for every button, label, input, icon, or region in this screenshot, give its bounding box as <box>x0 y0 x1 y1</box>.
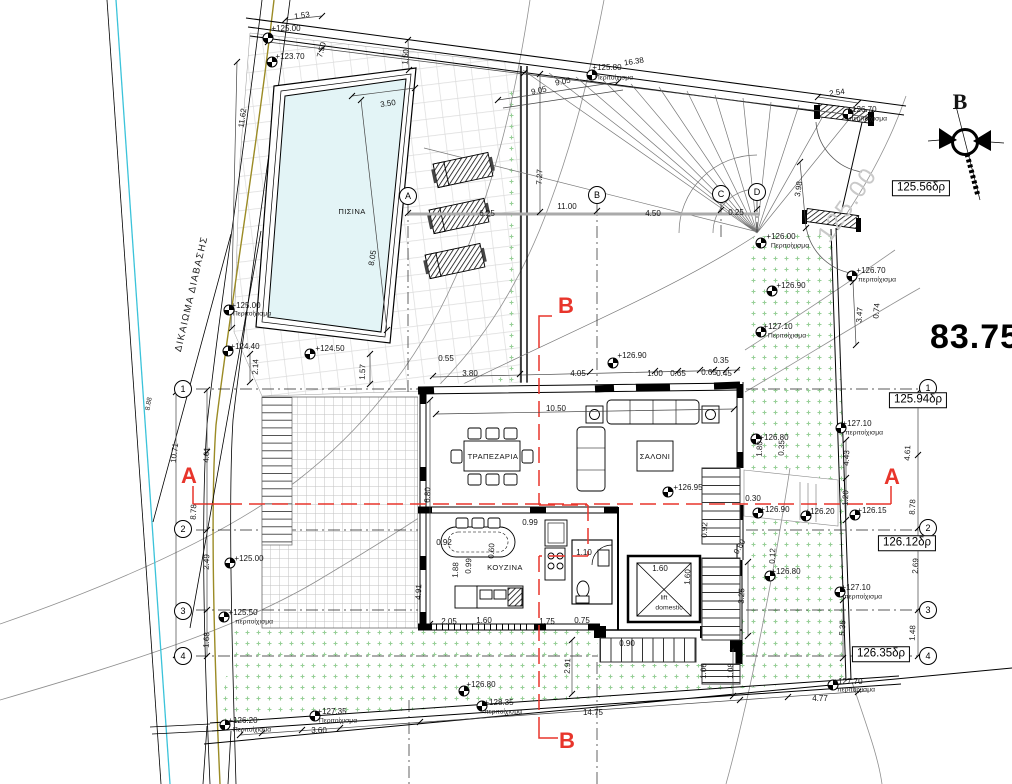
wall-note-3: περιτοίχισμα <box>849 117 887 124</box>
benchmark-icon <box>756 238 767 249</box>
elev-126-20-bl: +126.20 <box>228 717 257 725</box>
dim-1-80: 1.80 <box>756 441 765 457</box>
dim-4-61-right: 4.61 <box>904 445 913 461</box>
elev-125-80: +125.80 <box>592 64 621 72</box>
dim-6-25: 6.25 <box>479 210 495 218</box>
section-b-bottom: B <box>559 730 575 752</box>
wall-note-10: περιτοίχισμα <box>484 710 522 717</box>
grid-bubble-d: D <box>748 183 766 201</box>
box-126-12: 126.12δρ <box>878 535 936 551</box>
dim-1-08: 1.08 <box>727 663 736 679</box>
dim-8-78-left: 8.78 <box>190 504 199 520</box>
dim-1-48: 1.48 <box>909 625 918 641</box>
dim-1-06: 1.06 <box>700 663 709 679</box>
dim-1-10: 1.10 <box>576 549 592 557</box>
dim-0-90: 0.90 <box>619 640 635 648</box>
wall-note-6: Περιτοίχισμα <box>768 334 806 341</box>
terrace-stair <box>262 397 292 545</box>
wall-note-11: Περιτοίχισμα <box>233 728 271 735</box>
dim-1-75: 1.75 <box>539 618 555 626</box>
dim-6-80: 6.80 <box>424 487 433 503</box>
dim-4-61-left: 4.61 <box>203 447 212 463</box>
box-125-56: 125.56δρ <box>892 180 950 196</box>
dim-0-55: 0.55 <box>438 355 454 363</box>
dim-5-35: 5.35 <box>839 620 848 636</box>
dim-3-80: 3.80 <box>462 370 478 378</box>
box-125-94: 125.94δρ <box>889 392 947 408</box>
dim-0-35-a: 0.35 <box>713 357 729 365</box>
dim-1-00: 1.00 <box>647 370 663 378</box>
elev-127-35: +127.35 <box>317 708 346 716</box>
area-total: 83.75 <box>930 320 1012 354</box>
dim-3-60: 3.60 <box>311 727 327 735</box>
dim-8-78-right: 8.78 <box>909 499 918 515</box>
dim-0-65-a: 0.65 <box>670 370 686 378</box>
elev-126-80-lower: +126.80 <box>771 568 800 576</box>
grid-bubble-4: 4 <box>919 647 937 665</box>
wall-note-1: Περιτοίχισμα <box>233 312 271 319</box>
north-label: B <box>953 91 968 113</box>
dim-3-47: 3.47 <box>855 307 864 323</box>
stair-bottom-flight <box>600 638 696 662</box>
wall-note-2: Περιτοίχισμα <box>595 76 633 83</box>
elev-124-50: +124.50 <box>315 345 344 353</box>
dim-4-91: 4.91 <box>415 584 424 600</box>
room-dining: ΤΡΑΠΕΖΑΡΙΑ <box>468 453 519 461</box>
elev-127-70: +127.70 <box>833 678 862 686</box>
grid-bubble-1: 1 <box>174 380 192 398</box>
grid-bubble-c: C <box>712 185 730 203</box>
dim-14-75: 14.75 <box>583 709 603 717</box>
dim-0-92-a: 0.92 <box>436 539 452 547</box>
elev-126-20-gate: +126.20 <box>805 508 834 516</box>
elev-126-70-right: +126.70 <box>856 267 885 275</box>
dim-1-57: 1.57 <box>359 364 368 380</box>
elev-127-10-ur: +127.10 <box>842 420 871 428</box>
dim-0-65-b: 0.65 <box>701 369 717 377</box>
dim-1-88: 1.88 <box>452 562 461 578</box>
swimming-pool <box>256 68 416 343</box>
dim-11-00: 11.00 <box>557 203 576 211</box>
dim-4-05: 4.05 <box>570 370 586 378</box>
dim-2-49: 2.49 <box>203 554 212 570</box>
grid-bubble-b: B <box>588 186 606 204</box>
section-a-right: A <box>884 466 900 488</box>
dim-0-99-b: 0.99 <box>465 558 474 574</box>
elev-123-70: +123.70 <box>275 53 304 61</box>
benchmark-icon <box>305 349 316 360</box>
room-kitchen: ΚΟΥΖΙΝΑ <box>487 564 523 572</box>
elev-124-40: +124.40 <box>230 343 259 351</box>
dim-0-25: 0.25 <box>728 209 744 217</box>
stair-lower <box>702 558 740 640</box>
dim-10-50: 10.50 <box>546 405 566 413</box>
dim-0-92-b: 0.92 <box>701 522 710 538</box>
elev-126-00: +126.00 <box>766 233 795 241</box>
dim-0-60: 0.60 <box>488 543 497 559</box>
dim-0-30: 0.30 <box>745 495 761 503</box>
dim-4-77: 4.77 <box>812 695 828 703</box>
dim-4-50: 4.50 <box>645 210 661 218</box>
dim-2-14: 2.14 <box>252 359 261 375</box>
elev-126-70-top: +126.70 <box>847 106 876 114</box>
lift-label-1: lift <box>661 596 668 603</box>
grid-bubble-4: 4 <box>174 647 192 665</box>
dim-7-27: 7.27 <box>536 169 545 185</box>
benchmark-icon <box>263 33 274 44</box>
elev-126-90-stair: +126.90 <box>760 506 789 514</box>
elev-126-15: +126.15 <box>857 507 886 515</box>
dim-1-20: 1.20 <box>842 490 851 506</box>
elev-128-35: +128.35 <box>484 699 513 707</box>
dim-0-12: 0.12 <box>769 548 778 564</box>
floor-plan-page: ABCD12341234 125.56δρ125.94δρ126.12δρ126… <box>0 0 1012 784</box>
dim-4-43: 4.43 <box>843 450 852 466</box>
elev-126-90-mid: +126.90 <box>617 352 646 360</box>
elev-125-00-left: +125.00 <box>231 302 260 310</box>
dim-1-60-lift-a: 1.60 <box>652 565 668 573</box>
wall-note-5: περιτοίχισμα <box>858 278 896 285</box>
section-a-left: A <box>181 465 197 487</box>
dim-2-05: 2.05 <box>441 618 457 626</box>
dim-1-68: 1.68 <box>203 632 212 648</box>
dim-0-45: 0.45 <box>716 370 732 378</box>
elev-127-10-lr: +127.10 <box>841 584 870 592</box>
dim-0-35-b: 0.35 <box>778 440 787 456</box>
dim-2-91: 2.91 <box>564 658 573 674</box>
dim-1-60-b: 1.60 <box>476 617 492 625</box>
elev-126-80-bottom: +126.80 <box>466 681 495 689</box>
elev-126-90-right: +126.90 <box>776 282 805 290</box>
box-126-35: 126.35δρ <box>852 646 910 662</box>
lift-label-2: domestic <box>655 606 682 613</box>
elev-125-50: +125.50 <box>228 609 257 617</box>
elev-125-00-mid: +125.00 <box>234 555 263 563</box>
dim-3-25: 3.25 <box>738 588 747 604</box>
dim-1-50: 1.50 <box>401 49 410 65</box>
elev-127-10-right: +127.10 <box>763 323 792 331</box>
elev-126-95: +126.95 <box>673 484 702 492</box>
wall-note-9: περιτοίχισμα <box>844 595 882 602</box>
room-pool: ΠΙΣΙΝΑ <box>338 208 365 216</box>
grid-bubble-3: 3 <box>174 602 192 620</box>
wall-note-13: περιτοίχισμα <box>837 688 875 695</box>
grid-bubble-2: 2 <box>174 520 192 538</box>
wall-note-8: περιτοίχισμα <box>845 431 883 438</box>
dim-2-69: 2.69 <box>912 558 921 574</box>
wall-note-4: Περιτοίχισμα <box>771 244 809 251</box>
wall-note-7: περιτοίχισμα <box>235 620 273 627</box>
dim-0-75: 0.75 <box>574 617 590 625</box>
wall-note-12: Περιτοίχισμα <box>319 719 357 726</box>
elev-125-00-top: +125.00 <box>271 25 300 33</box>
grid-bubble-3: 3 <box>919 601 937 619</box>
dim-0-74: 0.74 <box>872 303 881 319</box>
grid-bubble-a: A <box>399 187 417 205</box>
benchmark-icon <box>663 487 674 498</box>
dim-1-60-lift-b: 1.60 <box>684 569 693 585</box>
dim-0-99-a: 0.99 <box>522 519 538 527</box>
room-living: ΣΑΛΟΝΙ <box>640 453 671 461</box>
section-b-top: B <box>558 295 574 317</box>
